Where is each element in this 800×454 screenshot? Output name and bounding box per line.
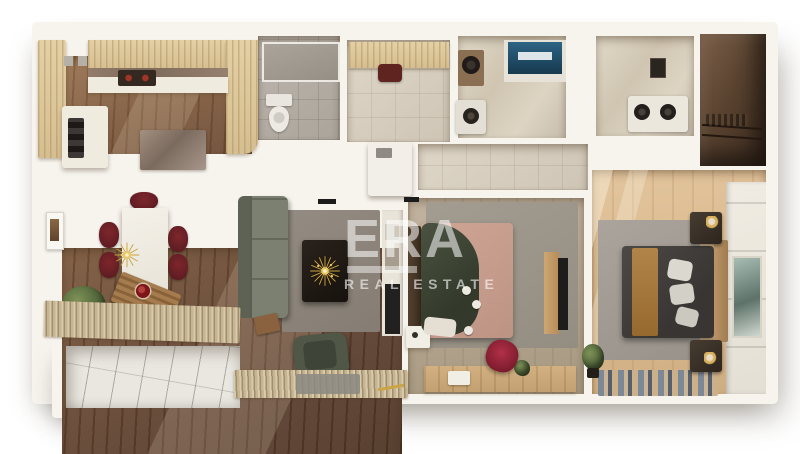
kitchen-upper-cabinets [88,40,228,70]
door-threshold [318,199,336,204]
frame-artwork [50,219,59,241]
corridor-floor [418,144,588,190]
sideboard-decor [385,224,399,240]
plant-pot [587,368,599,378]
deco-ball [462,286,471,295]
tv-screen [558,258,568,330]
stove-cooktop [118,70,156,86]
sofa-backrest [238,196,253,318]
dining-chair [168,226,188,252]
balcony-floor [66,346,240,408]
door-threshold [404,197,419,202]
pillow [666,258,693,282]
sink-basin [634,104,650,120]
wall-vent [78,56,87,66]
shower-glass-reflection [518,52,552,60]
mustard-throw [632,248,658,336]
sink-basin [462,56,480,74]
window-bench [43,301,240,344]
nightstand-decor [412,332,418,338]
built-in-oven [68,118,84,158]
kitchen-cabinet-column [226,40,258,154]
flower-decor [706,216,720,230]
striped-rug [598,370,718,396]
fridge-panel [376,148,392,158]
deco-ball [464,326,473,335]
tv-wood-panel [544,252,559,334]
wc-shower [262,42,340,82]
flower-decor [704,352,718,366]
pillow [423,316,457,337]
potted-plant [582,344,604,370]
sideboard-decor [385,248,399,270]
kitchen-backsplash [88,68,228,77]
floorplan-render: ERA REAL ESTATE [0,0,800,454]
gold-starburst-decor [308,254,342,288]
toilet-tank [266,94,292,106]
deco-ball [472,300,481,309]
bathroom-wall-art [650,58,666,78]
gold-chandelier [112,240,142,270]
entry-red-bench [378,64,402,82]
wardrobe-mirror [732,256,762,338]
armchair-cushion [303,339,338,370]
dining-chair [168,254,188,280]
wall-vent [64,56,73,66]
bench-gray-cushion [296,374,360,394]
headboard [408,226,421,338]
pillow [669,282,696,305]
washing-machine-door [463,108,479,124]
sink-basin [660,104,676,120]
kitchen-counter [88,77,228,93]
sofa [252,196,288,318]
tv-screen [385,284,400,334]
laptop [448,371,470,385]
headboard [714,240,728,342]
marble-island-mat [140,130,206,170]
hanging-clothes [706,114,748,126]
walkin-closet [700,34,766,166]
wine-glass [136,284,150,298]
